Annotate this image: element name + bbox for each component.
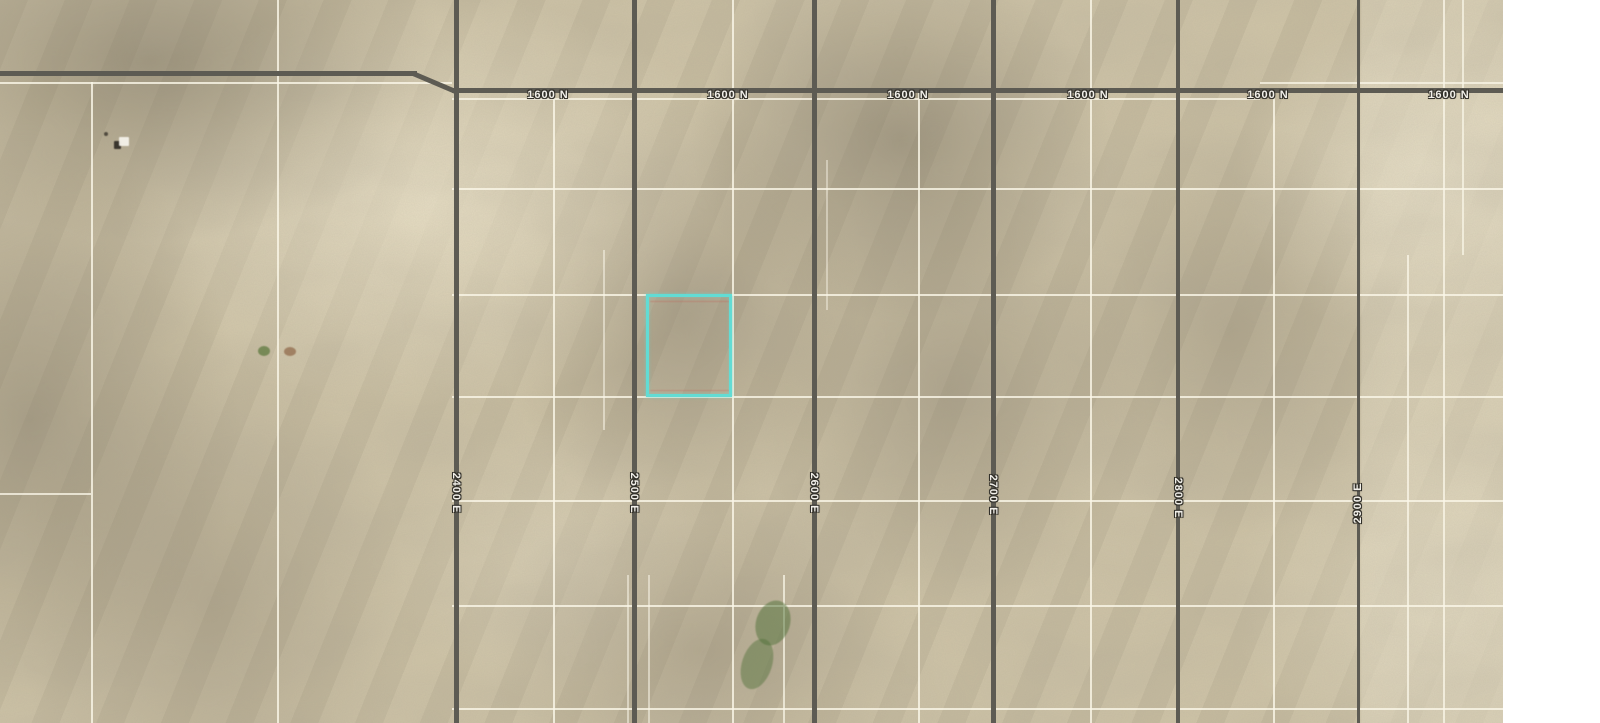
road-vertical [454, 0, 459, 723]
parcel-line-vertical [918, 88, 920, 723]
road-label-horizontal: 1600 N [1247, 89, 1288, 101]
parcel-line-horizontal [0, 82, 452, 84]
map-imagery[interactable]: 2400 E2500 E2600 E2700 E2800 E2900 E1600… [0, 0, 1503, 723]
parcel-line-horizontal [1260, 82, 1503, 84]
parcel-line-vertical [1462, 0, 1464, 255]
road-vertical [1176, 0, 1180, 723]
road-vertical [991, 0, 996, 723]
parcel-line-vertical [732, 0, 734, 723]
road-label-horizontal: 1600 N [1428, 89, 1469, 101]
parcel-line-horizontal [0, 493, 91, 495]
parcel-line-horizontal [452, 294, 1503, 296]
road-vertical [1357, 0, 1360, 723]
road-label-vertical: 2400 E [450, 473, 462, 514]
road-label-horizontal: 1600 N [527, 89, 568, 101]
road-label-vertical: 2800 E [1172, 478, 1184, 519]
parcel-line-vertical [1407, 255, 1409, 723]
vegetation-patch [258, 346, 270, 356]
parcel-line-horizontal [452, 396, 1503, 398]
ground-dot [104, 132, 108, 136]
parcel-line-vertical [277, 0, 279, 723]
parcel-line-vertical [826, 160, 828, 310]
building-roof [119, 137, 129, 146]
parcel-line-vertical [1090, 0, 1092, 723]
road-label-horizontal: 1600 N [707, 89, 748, 101]
road-label-vertical: 2700 E [987, 475, 999, 516]
parcel-line-vertical [627, 575, 629, 723]
road-horizontal [452, 88, 1503, 93]
parcel-line-vertical [783, 575, 785, 723]
road-horizontal [0, 71, 417, 76]
parcel-line-vertical [91, 82, 93, 723]
parcel-line-vertical [553, 88, 555, 723]
imagery-grain-texture [0, 0, 1503, 723]
parcel-line-vertical [1273, 88, 1275, 723]
road-label-vertical: 2500 E [628, 473, 640, 514]
satellite-map[interactable]: 2400 E2500 E2600 E2700 E2800 E2900 E1600… [0, 0, 1600, 723]
parcel-line-vertical [603, 250, 605, 430]
soil-spot [284, 347, 296, 356]
parcel-line-horizontal [452, 98, 1260, 100]
road-label-horizontal: 1600 N [1067, 89, 1108, 101]
road-label-vertical: 2900 E [1352, 483, 1364, 524]
road-label-horizontal: 1600 N [887, 89, 928, 101]
parcel-line-vertical [1443, 0, 1445, 723]
road-label-vertical: 2600 E [808, 473, 820, 514]
highlighted-parcel[interactable] [646, 294, 732, 397]
parcel-line-horizontal [452, 605, 1503, 607]
road-vertical [632, 0, 637, 723]
parcel-line-horizontal [452, 188, 1503, 190]
road-vertical [812, 0, 817, 723]
parcel-line-horizontal [452, 708, 1503, 710]
parcel-line-horizontal [452, 500, 1503, 502]
parcel-line-vertical [648, 575, 650, 723]
